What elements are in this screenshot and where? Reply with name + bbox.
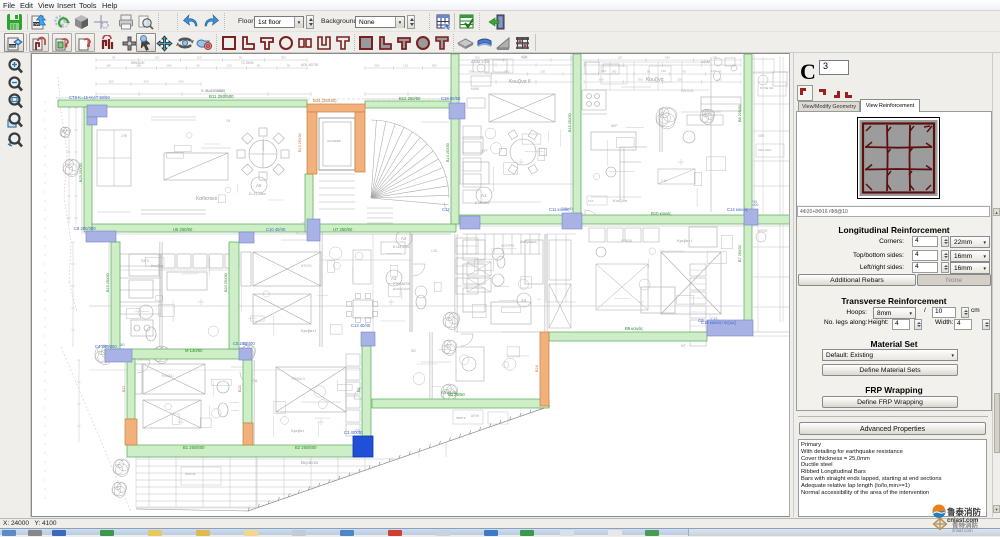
svg-text:ΛΟΥΤΡΟ: ΛΟΥΤΡΟ [501, 244, 515, 248]
svg-text:95: 95 [197, 64, 201, 68]
svg-text:ΤΖ 25/50: ΤΖ 25/50 [241, 61, 254, 65]
svg-text:Β8 225/50: Β8 225/50 [738, 105, 742, 122]
svg-text:Β16: Β16 [535, 365, 539, 372]
svg-text:B11 250/500: B11 250/500 [209, 94, 234, 99]
svg-text:350: 350 [432, 64, 437, 68]
svg-text:300: 300 [475, 56, 480, 60]
svg-text:Β13 25Χ50: Β13 25Χ50 [298, 133, 302, 152]
svg-text:E=48,50m²: E=48,50m² [393, 245, 411, 249]
svg-text:ΚΩΛ ΠΩΛ: ΚΩΛ ΠΩΛ [758, 148, 771, 152]
svg-text:WC: WC [411, 349, 417, 353]
svg-text:Β25 25Χ50: Β25 25Χ50 [79, 163, 83, 182]
svg-text:Κουζίνα ΙΙ: Κουζίνα ΙΙ [509, 79, 531, 85]
svg-text:1Φ: 1Φ [226, 119, 231, 123]
svg-text:Β2: Β2 [357, 387, 361, 392]
svg-text:C12: C12 [442, 207, 450, 212]
svg-text:250: 250 [677, 78, 682, 82]
svg-text:ΚΗΠΟΣ: ΚΗΠΟΣ [185, 472, 196, 476]
svg-text:Καθιστικό: Καθιστικό [196, 195, 218, 202]
svg-text:ΠΑΓΚΟΣ: ΠΑΓΚΟΣ [681, 89, 694, 93]
svg-text:E=31,28m²: E=31,28m² [249, 192, 267, 196]
svg-text:A2: A2 [401, 236, 407, 241]
svg-text:Β14 25Χ50: Β14 25Χ50 [446, 143, 450, 162]
svg-text:Κρεβατ Ι: Κρεβατ Ι [301, 328, 316, 333]
svg-text:120: 120 [540, 70, 545, 74]
svg-text:120: 120 [227, 64, 232, 68]
svg-text:Βυθ 235/350: Βυθ 235/350 [206, 89, 225, 93]
svg-text:Β7 25Χ50: Β7 25Χ50 [738, 245, 742, 262]
svg-text:95: 95 [257, 64, 261, 68]
svg-text:Κρεβατ: Κρεβατ [291, 428, 304, 433]
svg-text:A3: A3 [391, 276, 397, 281]
svg-text:ΠΑΓΚ: ΠΑΓΚ [141, 259, 150, 263]
svg-text:2.95: 2.95 [121, 134, 127, 138]
svg-text:znjiaf.com: znjiaf.com [952, 528, 973, 532]
svg-text:350: 350 [638, 78, 643, 82]
svg-text:A5: A5 [256, 183, 262, 188]
svg-text:A1: A1 [481, 193, 487, 198]
svg-text:350: 350 [469, 70, 474, 74]
svg-text:ΔΩΜ: ΔΩΜ [701, 59, 710, 64]
svg-text:S3 25/50: S3 25/50 [448, 392, 465, 397]
svg-text:C5 200/400: C5 200/400 [233, 341, 255, 346]
svg-text:95: 95 [239, 56, 243, 60]
svg-text:Β19 25Χ50: Β19 25Χ50 [106, 273, 110, 292]
svg-text:ΝΥΧΕ ΚΩ: ΝΥΧΕ ΚΩ [760, 86, 774, 90]
svg-text:120: 120 [403, 64, 408, 68]
svg-text:300: 300 [599, 78, 604, 82]
svg-text:ΛΕΒ: ΛΕΒ [758, 134, 764, 138]
svg-text:Β22: Β22 [238, 385, 242, 392]
svg-text:Κρεβατ I: Κρεβατ I [677, 238, 692, 243]
svg-text:A4: A4 [521, 298, 527, 303]
svg-text:U7 250/50: U7 250/50 [333, 227, 353, 232]
svg-text:C11 κοινός: C11 κοινός [549, 207, 569, 212]
svg-text:95: 95 [287, 64, 291, 68]
svg-text:ΝΤ: ΝΤ [681, 344, 686, 348]
svg-text:350: 350 [109, 80, 114, 84]
svg-text:C8 200/300: C8 200/300 [74, 226, 96, 231]
svg-text:180: 180 [106, 64, 111, 68]
svg-text:U5 250/50: U5 250/50 [173, 227, 193, 232]
svg-text:350: 350 [374, 64, 379, 68]
svg-text:Β21: Β21 [122, 385, 126, 392]
svg-text:250: 250 [601, 69, 606, 73]
svg-text:95: 95 [683, 70, 687, 74]
svg-text:C19 50/50: C19 50/50 [441, 96, 461, 101]
svg-text:C10 40/40: C10 40/40 [266, 227, 286, 232]
svg-text:ΔΟΚ: ΔΟΚ [521, 55, 529, 59]
svg-text:ΠΕΡΓΚ: ΠΕΡΓΚ [456, 416, 466, 420]
svg-text:8Φ6/ΔΟΚ: 8Φ6/ΔΟΚ [131, 61, 146, 65]
svg-text:180: 180 [179, 80, 184, 84]
svg-text:120: 120 [154, 56, 159, 60]
svg-text:ΚΛΙΜ: ΚΛΙΜ [471, 87, 479, 91]
svg-text:120: 120 [197, 56, 202, 60]
svg-text:B10 κοινός: B10 κοινός [651, 211, 671, 216]
svg-text:B1 250/500: B1 250/500 [183, 445, 205, 450]
svg-text:Κουζίνα: Κουζίνα [613, 198, 628, 203]
svg-text:ΥΠΝΟΔ II: ΥΠΝΟΔ II [291, 377, 305, 381]
svg-text:180: 180 [712, 56, 717, 60]
svg-text:180: 180 [611, 70, 616, 74]
svg-text:C4 200/300: C4 200/300 [95, 344, 117, 349]
svg-text:C3 40Χ40: C3 40Χ40 [344, 430, 363, 435]
svg-text:ΝΤΟΥΛ: ΝΤΟΥΛ [301, 264, 312, 268]
svg-text:145: 145 [711, 69, 716, 73]
svg-text:95: 95 [112, 56, 116, 60]
svg-text:180: 180 [665, 56, 670, 60]
svg-text:διάδρομος: διάδρομος [520, 240, 537, 244]
svg-text:CT5 Κ=15+ΚΑΤ 50/50: CT5 Κ=15+ΚΑΤ 50/50 [69, 95, 110, 100]
svg-text:B12 250/50: B12 250/50 [399, 96, 421, 101]
svg-text:C16 κοινός+ος(ως): C16 κοινός+ος(ως) [701, 320, 737, 325]
svg-text:ΥΠΝΟΔ I: ΥΠΝΟΔ I [161, 374, 174, 378]
svg-text:ΓΣΑ: ΓΣΑ [588, 199, 594, 203]
svg-text:1.20: 1.20 [431, 249, 437, 253]
svg-text:B9 κοινός: B9 κοινός [625, 326, 643, 331]
svg-text:ΨΥΓ: ΨΥΓ [481, 149, 488, 153]
svg-text:Β20 25Χ50: Β20 25Χ50 [224, 273, 228, 292]
svg-text:ΝΕΡ: ΝΕΡ [611, 124, 618, 128]
svg-text:DWG: DWG [9, 44, 17, 48]
svg-text:95: 95 [647, 70, 651, 74]
svg-text:鲁泰消防: 鲁泰消防 [947, 507, 982, 517]
svg-text:ΑΥΛΗ: ΑΥΛΗ [471, 414, 480, 418]
svg-text:120: 120 [617, 56, 622, 60]
svg-text:B2 250/500: B2 250/500 [295, 445, 317, 450]
svg-text:180: 180 [166, 64, 171, 68]
svg-text:Β15 25Χ50: Β15 25Χ50 [568, 113, 572, 132]
svg-text:300: 300 [144, 80, 149, 84]
svg-text:250: 250 [281, 56, 286, 60]
svg-text:C13 40/40: C13 40/40 [351, 323, 371, 328]
svg-text:M 140/60: M 140/60 [185, 348, 203, 353]
svg-text:B34 (25Χ50): B34 (25Χ50) [313, 98, 337, 103]
svg-text:ΑΣΑΝΣΕΡ: ΑΣΑΝΣΕΡ [327, 139, 341, 143]
svg-text:180: 180 [661, 69, 666, 73]
svg-text:Βεράντα: Βεράντα [301, 459, 318, 465]
svg-text:ΣΤΟΜΑΤΙΚ: ΣΤΟΜΑΤΙΚ [393, 282, 411, 286]
svg-text:C14 κοινός: C14 κοινός [727, 207, 748, 212]
svg-text:ΔΟΚ 40/700: ΔΟΚ 40/700 [301, 63, 319, 67]
